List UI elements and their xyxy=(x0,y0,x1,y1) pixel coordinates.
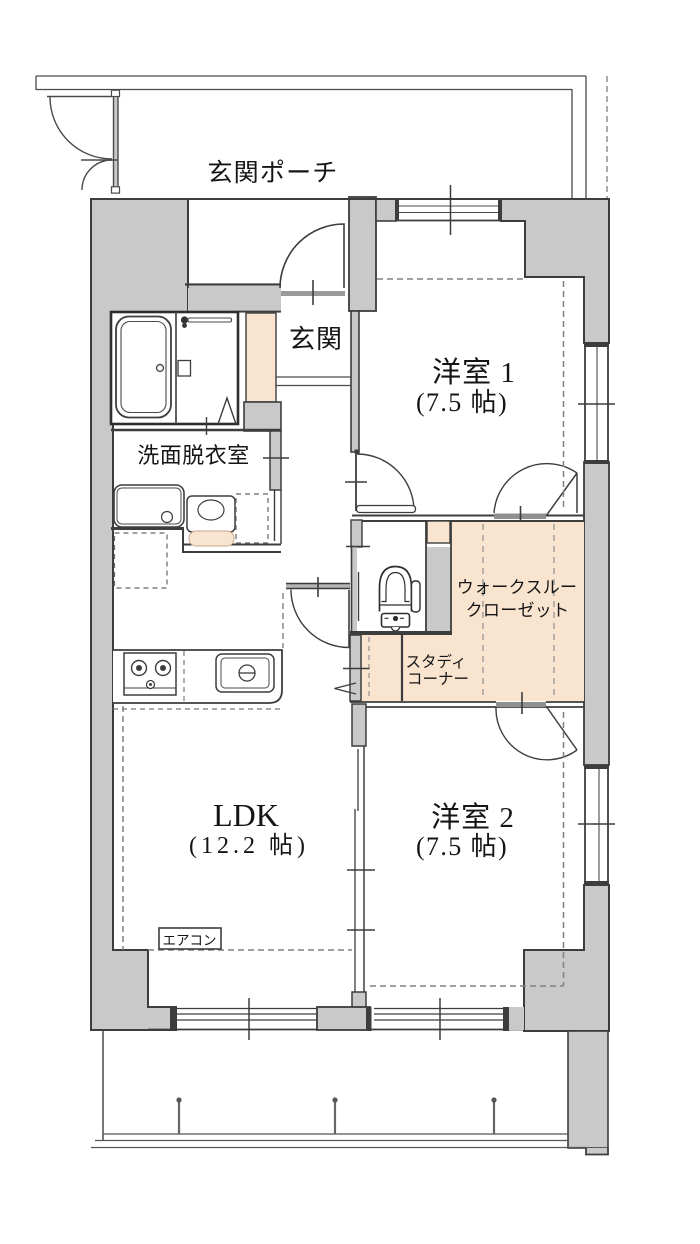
svg-text:(7.5 帖): (7.5 帖) xyxy=(416,832,508,861)
svg-text:洋室 1: 洋室 1 xyxy=(432,356,516,389)
svg-text:洗面脱衣室: 洗面脱衣室 xyxy=(137,443,250,468)
svg-text:洋室 2: 洋室 2 xyxy=(431,801,515,834)
svg-text:(12.2 帖): (12.2 帖) xyxy=(189,832,309,859)
svg-text:LDK: LDK xyxy=(213,797,279,833)
svg-text:ウォークスルー: ウォークスルー xyxy=(457,578,578,597)
svg-text:玄関ポーチ: 玄関ポーチ xyxy=(207,159,338,187)
svg-text:エアコン: エアコン xyxy=(163,933,217,948)
svg-text:クローゼット: クローゼット xyxy=(466,601,570,620)
svg-text:玄関: 玄関 xyxy=(289,325,343,354)
svg-text:コーナー: コーナー xyxy=(407,671,469,688)
svg-text:スタディ: スタディ xyxy=(406,652,467,671)
svg-text:(7.5 帖): (7.5 帖) xyxy=(416,388,508,417)
